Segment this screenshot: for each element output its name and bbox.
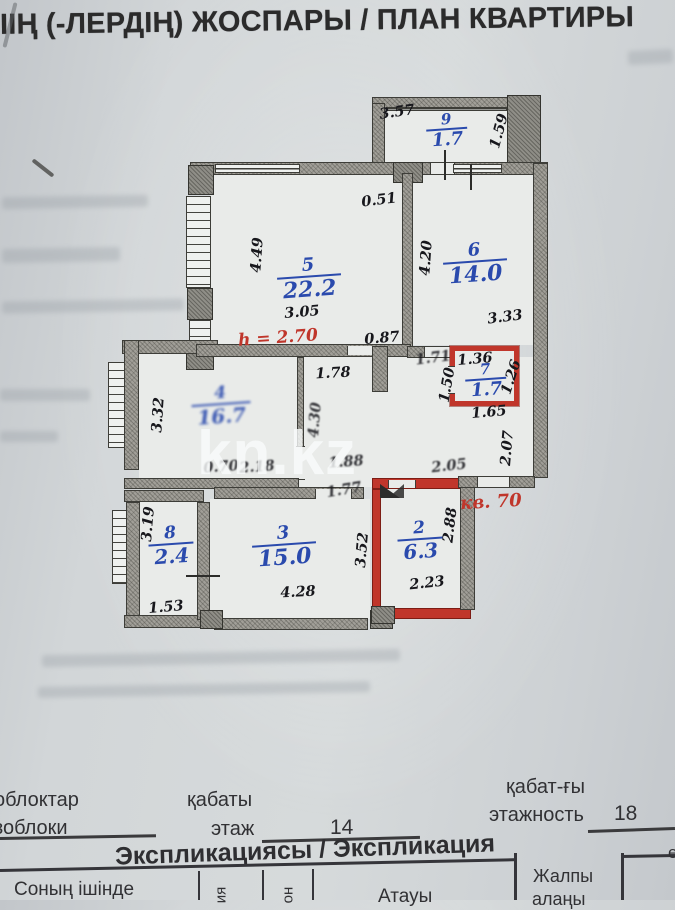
dimension-label: 4.20 xyxy=(416,240,435,276)
storeys-label-ru: этажность xyxy=(489,804,584,827)
dimension-label: 3.05 xyxy=(284,302,321,322)
wall-pillar xyxy=(187,288,213,320)
room-6-label: 614.0 xyxy=(442,239,509,288)
room-area: 14.0 xyxy=(443,258,508,288)
room-7-label: 71.7 xyxy=(464,361,508,401)
storeys-label-kk: қабат-ғы xyxy=(506,776,585,799)
balcony-door-opening xyxy=(430,163,455,174)
col-header-total-1: Жалпы xyxy=(533,866,593,887)
room-5-label: 522.2 xyxy=(276,254,343,303)
dimension-label: 3.32 xyxy=(148,397,167,433)
floor-label-kk: қабаты xyxy=(187,789,252,812)
block-label-kk: облоктар xyxy=(0,789,79,812)
ref-line xyxy=(470,164,472,190)
wall-stub xyxy=(372,346,388,392)
wall-pillar xyxy=(507,95,541,168)
blank-line xyxy=(588,827,675,833)
table-border xyxy=(621,854,675,857)
entrance-door-opening xyxy=(477,477,510,487)
room-area: 2.4 xyxy=(148,541,194,568)
wall xyxy=(124,340,139,470)
room-2-label: 26.3 xyxy=(396,519,444,564)
col-header-within: Соның ішінде xyxy=(14,879,134,901)
wall xyxy=(214,618,368,630)
col-header-rotated-2: он xyxy=(280,887,297,904)
wall xyxy=(197,502,210,620)
scanned-floor-plan-page: { "title": "ІІҢ (-ЛЕРДІҢ) ЖОСПАРЫ / ПЛАН… xyxy=(0,0,675,900)
col-header-partial: е xyxy=(668,843,675,863)
wall xyxy=(124,615,202,628)
table-border xyxy=(312,869,314,900)
entrance-door-mark xyxy=(388,484,404,498)
wall-pillar xyxy=(200,610,223,629)
red-note: кв. 70 xyxy=(460,490,523,514)
col-header-name: Атауы xyxy=(378,886,432,908)
table-border xyxy=(262,870,264,900)
wall xyxy=(124,490,204,502)
floor-plan: 3.571.590.514.493.050.874.203.331.711.36… xyxy=(0,0,675,760)
dimension-label: 4.49 xyxy=(247,237,266,273)
room-9-label: 91.7 xyxy=(425,111,469,151)
wall xyxy=(402,173,413,347)
window-bay xyxy=(112,510,127,584)
red-wall xyxy=(372,489,381,610)
dimension-label: 4.28 xyxy=(280,583,316,602)
room-area: 15.0 xyxy=(252,541,317,571)
dimension-label: 1.78 xyxy=(315,364,351,383)
room-area: 1.7 xyxy=(465,376,508,401)
storeys-value: 18 xyxy=(614,802,637,826)
dimension-label: 0.87 xyxy=(364,328,401,348)
window xyxy=(453,164,502,173)
dimension-label: 3.52 xyxy=(352,532,372,569)
table-border xyxy=(621,853,624,900)
dimension-label: 2.07 xyxy=(497,430,517,467)
wall-pillar xyxy=(371,606,395,624)
table-border xyxy=(514,853,517,900)
room-area: 6.3 xyxy=(397,536,443,563)
table-border xyxy=(198,871,200,900)
room-area: 1.7 xyxy=(426,126,469,151)
window xyxy=(215,164,300,173)
wall-pillar xyxy=(188,165,214,195)
room-8-label: 82.4 xyxy=(147,524,195,569)
window-bay xyxy=(186,196,211,288)
door-tick xyxy=(186,575,220,577)
room-area: 22.2 xyxy=(277,273,342,303)
dimension-label: 1.65 xyxy=(471,402,508,422)
dimension-label: 1.53 xyxy=(148,597,185,617)
wall xyxy=(533,163,548,478)
wall xyxy=(126,502,140,620)
col-header-rotated-1: ия xyxy=(213,887,230,904)
ref-line xyxy=(444,150,446,180)
window-bay xyxy=(108,362,125,448)
watermark: kn.kz xyxy=(197,418,357,489)
room-3-label: 315.0 xyxy=(251,522,318,571)
